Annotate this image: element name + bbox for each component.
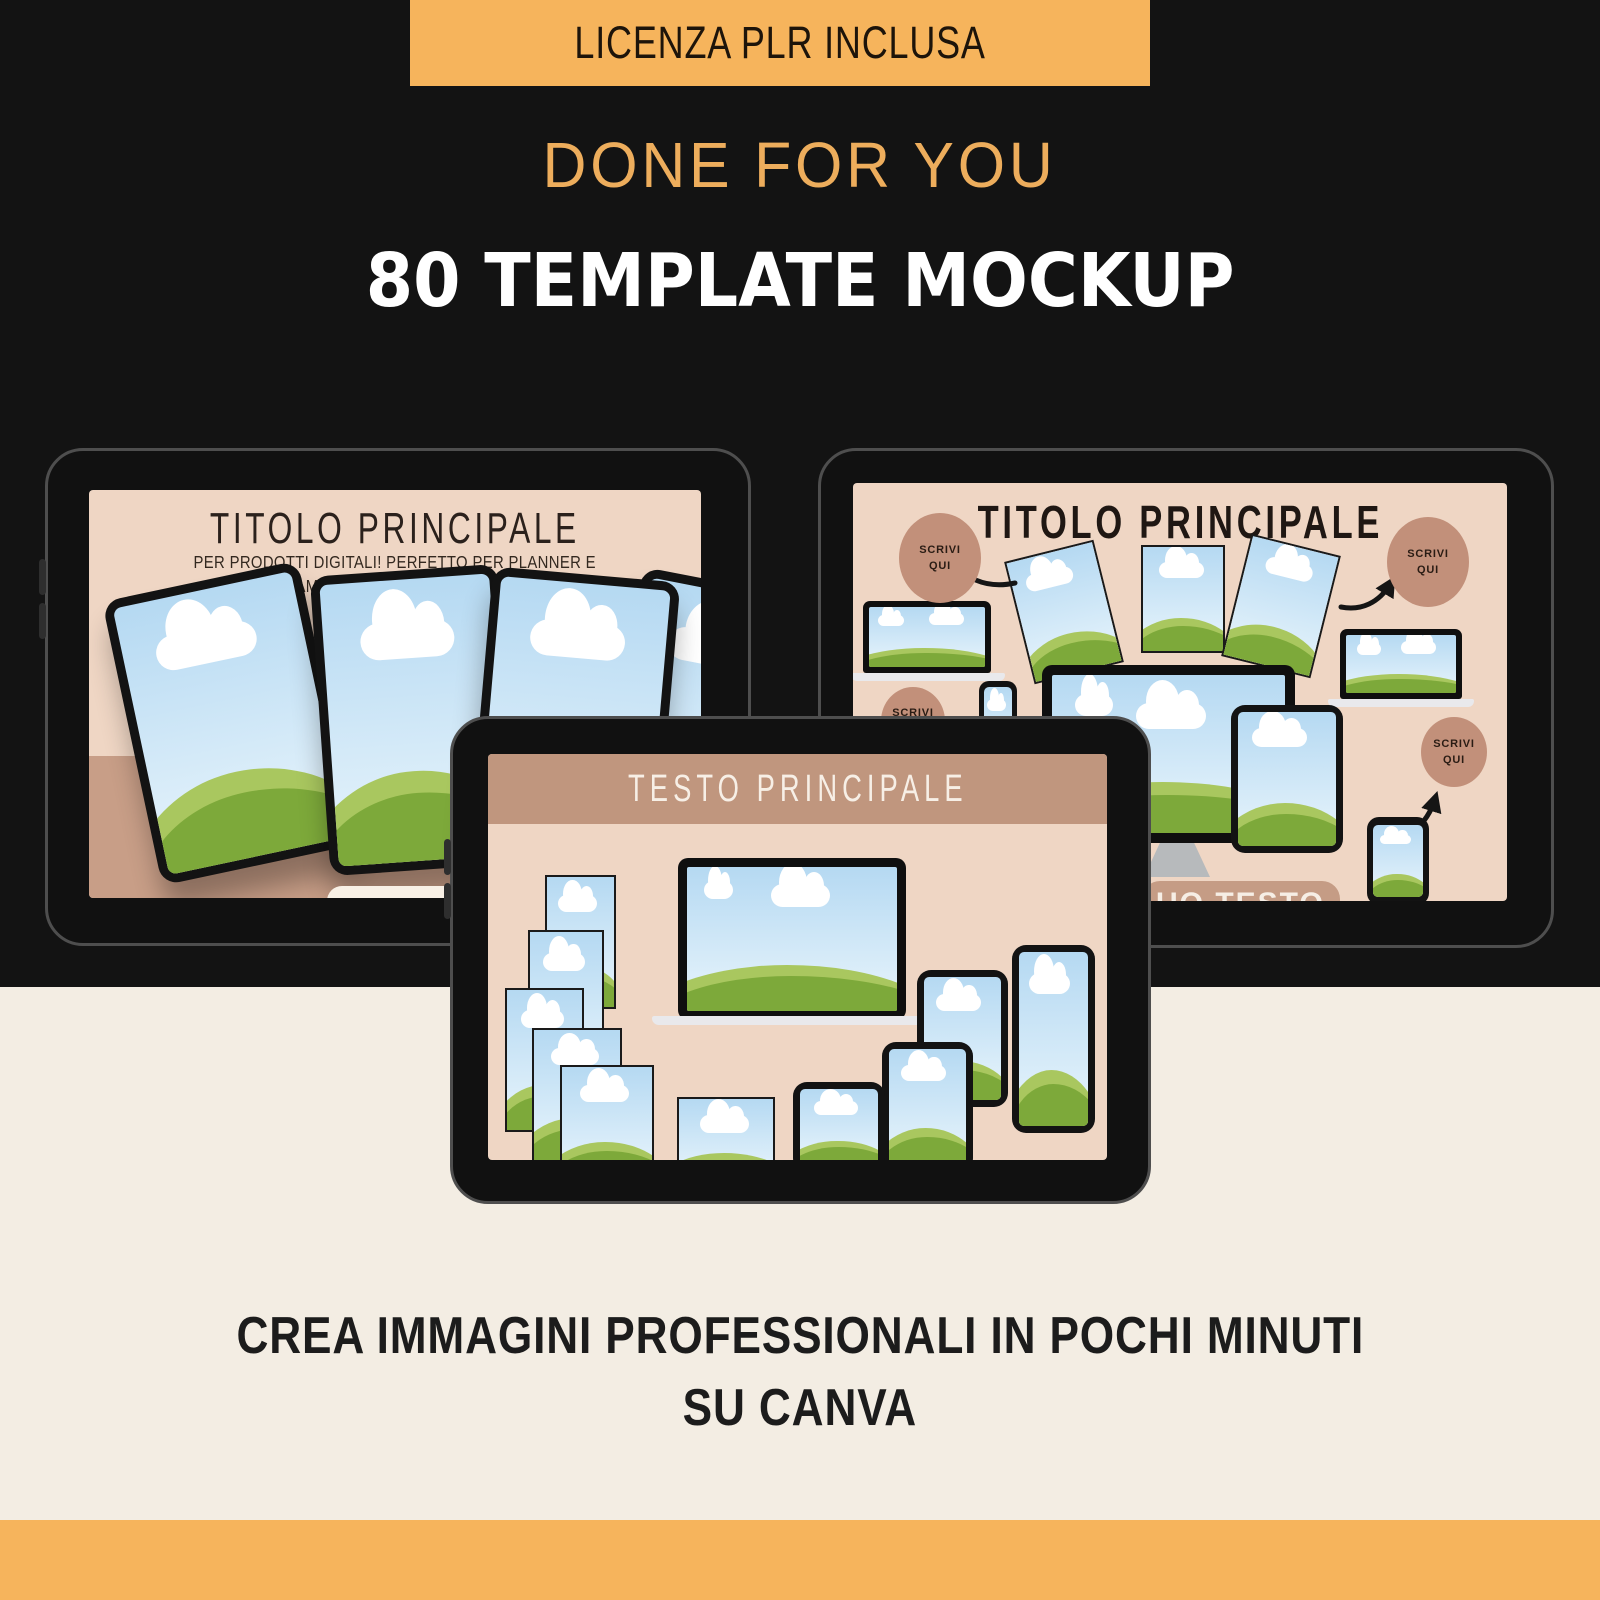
tablet-mockup-center: TESTO PRINCIPALE: [450, 716, 1151, 1204]
laptop-mockup: [678, 858, 906, 1020]
scrivi-qui-badge: SCRIVI QUI: [1387, 517, 1469, 607]
tablet-mockup: [1012, 945, 1095, 1133]
tagline: DONE FOR YOU: [0, 128, 1600, 202]
mockup-subtitle-line1: PER PRODOTTI DIGITALI! PERFETTO PER PLAN…: [89, 552, 701, 573]
promo-graphic: LICENZA PLR INCLUSA DONE FOR YOU 80 TEMP…: [0, 0, 1600, 1600]
title-band: TESTO PRINCIPALE: [488, 754, 1107, 824]
laptop-base: [853, 673, 1005, 681]
laptop-base: [652, 1016, 932, 1025]
laptop-mockup: [863, 601, 991, 673]
laptop-mockup: [1340, 629, 1462, 699]
photo-card: [677, 1097, 775, 1160]
tablet-center-screen: TESTO PRINCIPALE: [488, 754, 1107, 1160]
phone-mockup: [1367, 817, 1429, 901]
headline: 80 TEMPLATE MOCKUP: [0, 238, 1600, 324]
tablet-mockup: [1231, 705, 1343, 853]
mockup-title: TESTO PRINCIPALE: [628, 768, 968, 811]
text-banner: UO TESTO: [1142, 881, 1340, 901]
top-banner: LICENZA PLR INCLUSA: [410, 0, 1150, 86]
curved-arrow-icon: [1337, 577, 1397, 611]
photo-card: [1141, 545, 1225, 653]
scrivi-qui-badge: SCRIVI QUI: [899, 513, 981, 603]
photo-card: [1004, 540, 1124, 685]
mockup-title: TITOLO PRINCIPALE: [89, 504, 701, 554]
tablet-mockup: [882, 1042, 973, 1160]
footer-tagline-line1: CREA IMMAGINI PROFESSIONALI IN POCHI MIN…: [0, 1306, 1600, 1366]
volume-button: [444, 839, 451, 875]
bottom-accent-bar: [0, 1520, 1600, 1600]
photo-card: [1221, 534, 1341, 679]
phone-mockup: [793, 1082, 885, 1160]
volume-button: [39, 559, 46, 595]
monitor-stand: [1144, 843, 1210, 877]
scrivi-qui-badge: SCRIVI QUI: [1421, 717, 1487, 787]
volume-button: [444, 883, 451, 919]
volume-button: [39, 603, 46, 639]
laptop-base: [1328, 699, 1474, 707]
photo-card: [560, 1065, 654, 1160]
top-banner-label: LICENZA PLR INCLUSA: [574, 17, 985, 69]
footer-tagline-line2: SU CANVA: [0, 1378, 1600, 1438]
